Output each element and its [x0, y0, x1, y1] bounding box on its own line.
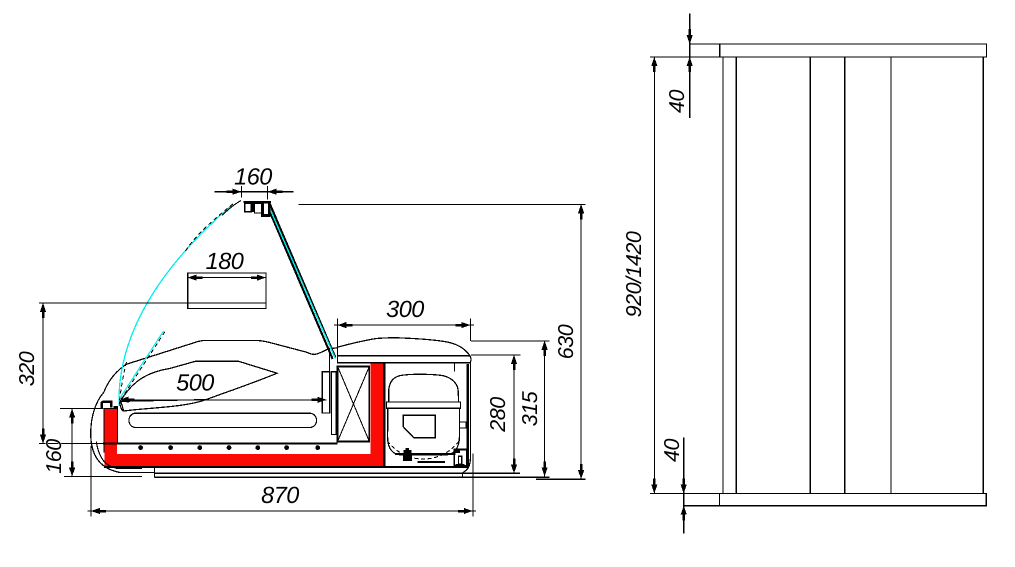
svg-text:40: 40: [660, 439, 684, 462]
svg-text:280: 280: [486, 397, 510, 433]
svg-text:870: 870: [261, 482, 299, 508]
svg-text:160: 160: [42, 439, 66, 474]
svg-text:300: 300: [386, 296, 424, 322]
svg-text:40: 40: [665, 90, 689, 113]
svg-text:315: 315: [518, 390, 542, 426]
svg-text:630: 630: [554, 324, 578, 359]
svg-text:180: 180: [206, 248, 244, 274]
svg-text:920/1420: 920/1420: [622, 231, 646, 317]
svg-text:160: 160: [234, 164, 272, 190]
svg-text:500: 500: [176, 370, 214, 396]
svg-text:320: 320: [15, 351, 39, 386]
